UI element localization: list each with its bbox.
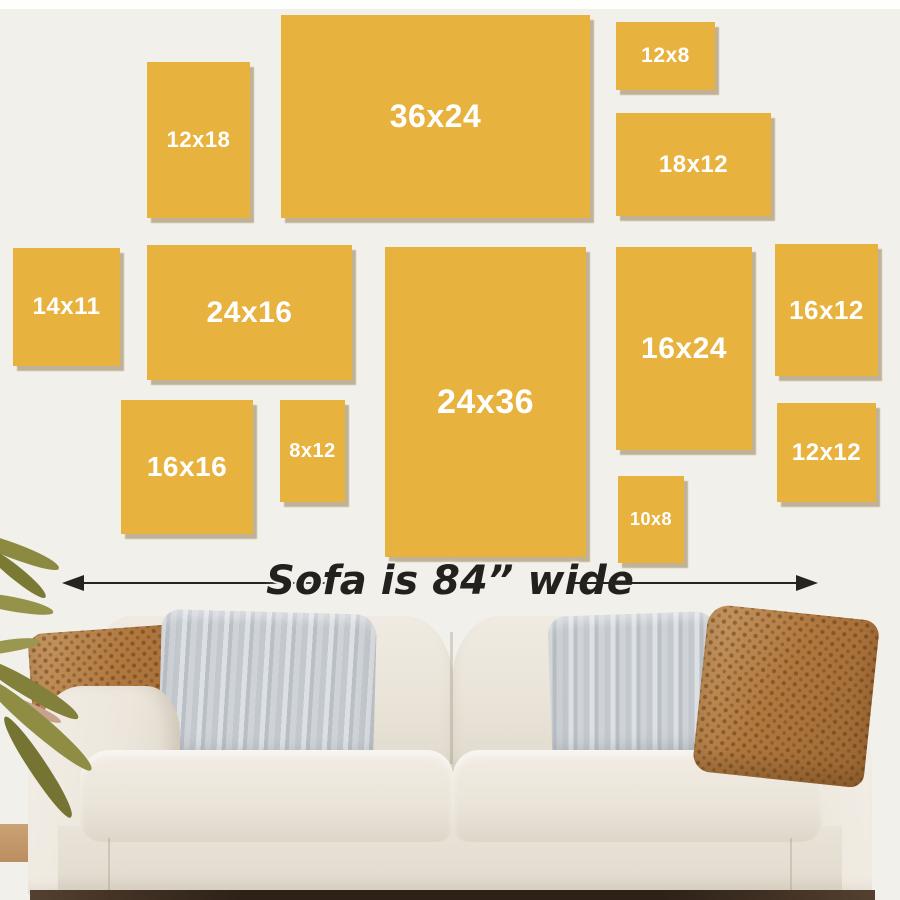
frame-size-label: 36x24 (390, 98, 481, 135)
frame-16x12: 16x12 (775, 244, 878, 376)
frame-36x24: 36x24 (281, 15, 590, 218)
sofa-skirt-seam-right (790, 838, 792, 890)
frame-size-label: 18x12 (659, 151, 728, 179)
frame-12x12: 12x12 (777, 403, 876, 502)
arrow-line-right (574, 582, 798, 584)
sofa-seat-cushion-left (80, 750, 453, 842)
frame-12x18: 12x18 (147, 62, 250, 218)
frame-8x12: 8x12 (280, 400, 345, 502)
arrow-right-icon (796, 575, 818, 591)
frame-size-label: 12x8 (641, 44, 690, 68)
sofa-width-caption: Sofa is 84” wide (266, 558, 634, 604)
frame-16x24: 16x24 (616, 247, 752, 450)
frame-size-label: 10x8 (630, 509, 672, 530)
wall-art-size-guide-image: 12x1836x2412x818x1214x1124x1624x3616x241… (0, 0, 900, 900)
sofa-back-seam (450, 632, 453, 764)
frame-size-label: 12x12 (792, 439, 861, 467)
top-white-border (0, 0, 900, 9)
frame-size-label: 24x36 (437, 383, 534, 422)
frame-size-label: 16x12 (789, 295, 864, 326)
sofa-skirt-seam-left (108, 838, 110, 890)
plant-leaf (0, 590, 55, 617)
frame-14x11: 14x11 (13, 248, 120, 366)
frame-18x12: 18x12 (616, 113, 771, 216)
frame-size-label: 14x11 (33, 293, 101, 321)
throw-pillow-rust-right (692, 603, 881, 788)
frame-12x8: 12x8 (616, 22, 715, 90)
frame-size-label: 16x24 (641, 332, 727, 366)
frame-16x16: 16x16 (121, 400, 253, 534)
frame-10x8: 10x8 (618, 476, 684, 563)
floor-patch (0, 824, 30, 862)
floor-shadow-strip (30, 890, 875, 900)
frame-size-label: 12x18 (167, 127, 231, 153)
frame-24x16: 24x16 (147, 245, 352, 380)
frame-size-label: 8x12 (289, 440, 336, 463)
frame-size-label: 24x16 (207, 296, 293, 330)
frame-size-label: 16x16 (147, 451, 227, 483)
throw-pillow-gray-left (158, 609, 377, 767)
frame-24x36: 24x36 (385, 247, 586, 557)
